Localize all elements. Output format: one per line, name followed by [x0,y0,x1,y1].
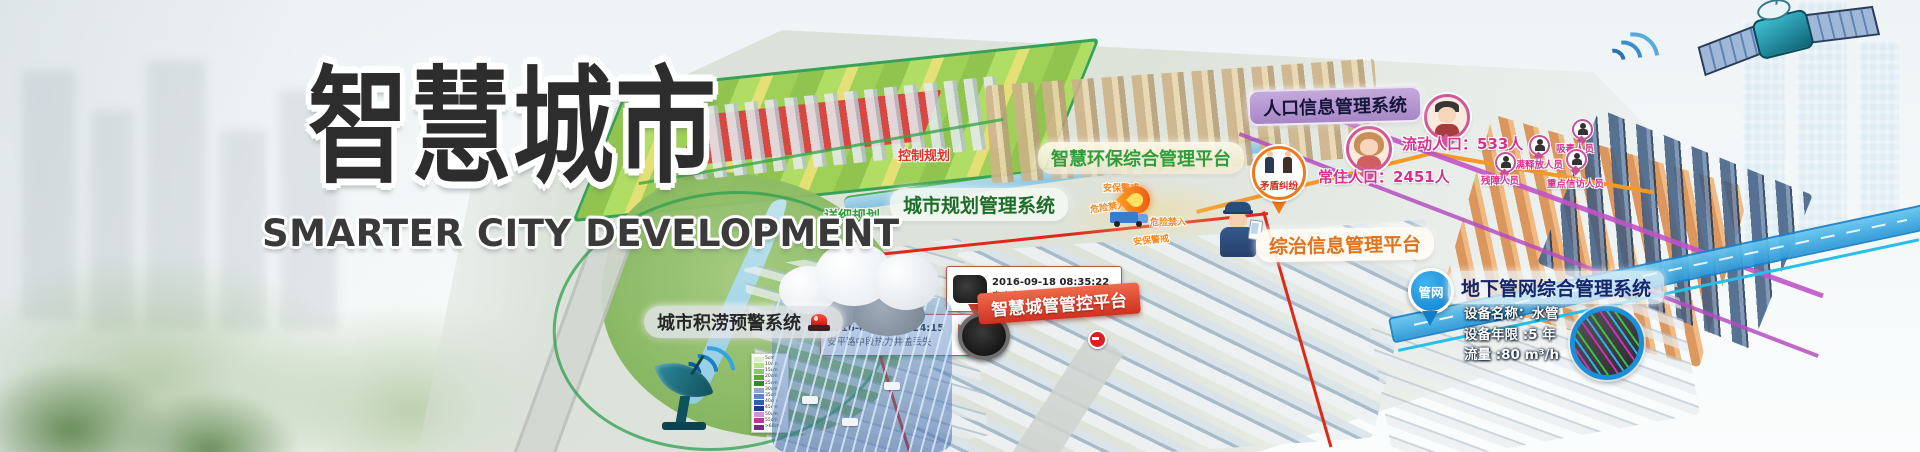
smart-city-banner: 控制规划 详细规划 安保警戒 危险禁入 危险禁入 安保警戒 常住人口：2451人… [0,0,1920,452]
pipe-flow-info: 流量 :80 m³/h [1464,343,1559,363]
pipe-age-info: 设备年限 :5 年 [1464,323,1556,343]
person-figure-icon [1283,157,1292,173]
dispute-pin: 矛盾纠纷 [1252,146,1306,214]
floating-population-label: 流动人口：533人 [1402,133,1523,154]
page-subtitle: SMARTER CITY DEVELOPMENT [262,212,900,255]
alarm-siren-icon [808,314,830,331]
wifi-signal-icon [1597,19,1676,98]
pipe-magnifier-view [1570,306,1644,380]
waterlogging-label-text: 城市积涝预警系统 [657,309,801,335]
special-group-label: 重点信访人员 [1547,176,1604,190]
special-group-label: 残障人员 [1481,173,1519,187]
person-figure-icon [1265,157,1274,173]
pipe-name-info: 设备名称：水管 [1464,302,1559,322]
wireframe-tower [1858,40,1900,232]
resident-population-label: 常住人口：2451人 [1318,166,1450,187]
police-officer-icon [1220,202,1256,260]
fire-truck-icon [1110,212,1150,228]
dispute-label: 矛盾纠纷 [1255,178,1303,192]
special-group-pin [1566,149,1586,177]
satellite-dish-icon [652,352,722,436]
no-entry-sign-icon [1088,330,1107,349]
label-governance-platform: 综治信息管理平台 [1256,226,1435,262]
label-urban-planning-system: 城市规划管理系统 [890,188,1068,221]
control-plan-note: 控制规划 [898,145,950,164]
label-pipe-network-system: 地下管网综合管理系统 [1448,271,1664,304]
danger-no-entry-note: 危险禁入 [1150,215,1186,228]
pipe-network-pin: 管网 [1408,268,1452,326]
label-environment-platform: 智慧环保综合管理平台 [1038,142,1244,174]
page-title: 智慧城市 [308,56,718,201]
label-population-system: 人口信息管理系统 [1248,86,1423,127]
label-waterlogging-system: 城市积涝预警系统 [644,306,843,338]
